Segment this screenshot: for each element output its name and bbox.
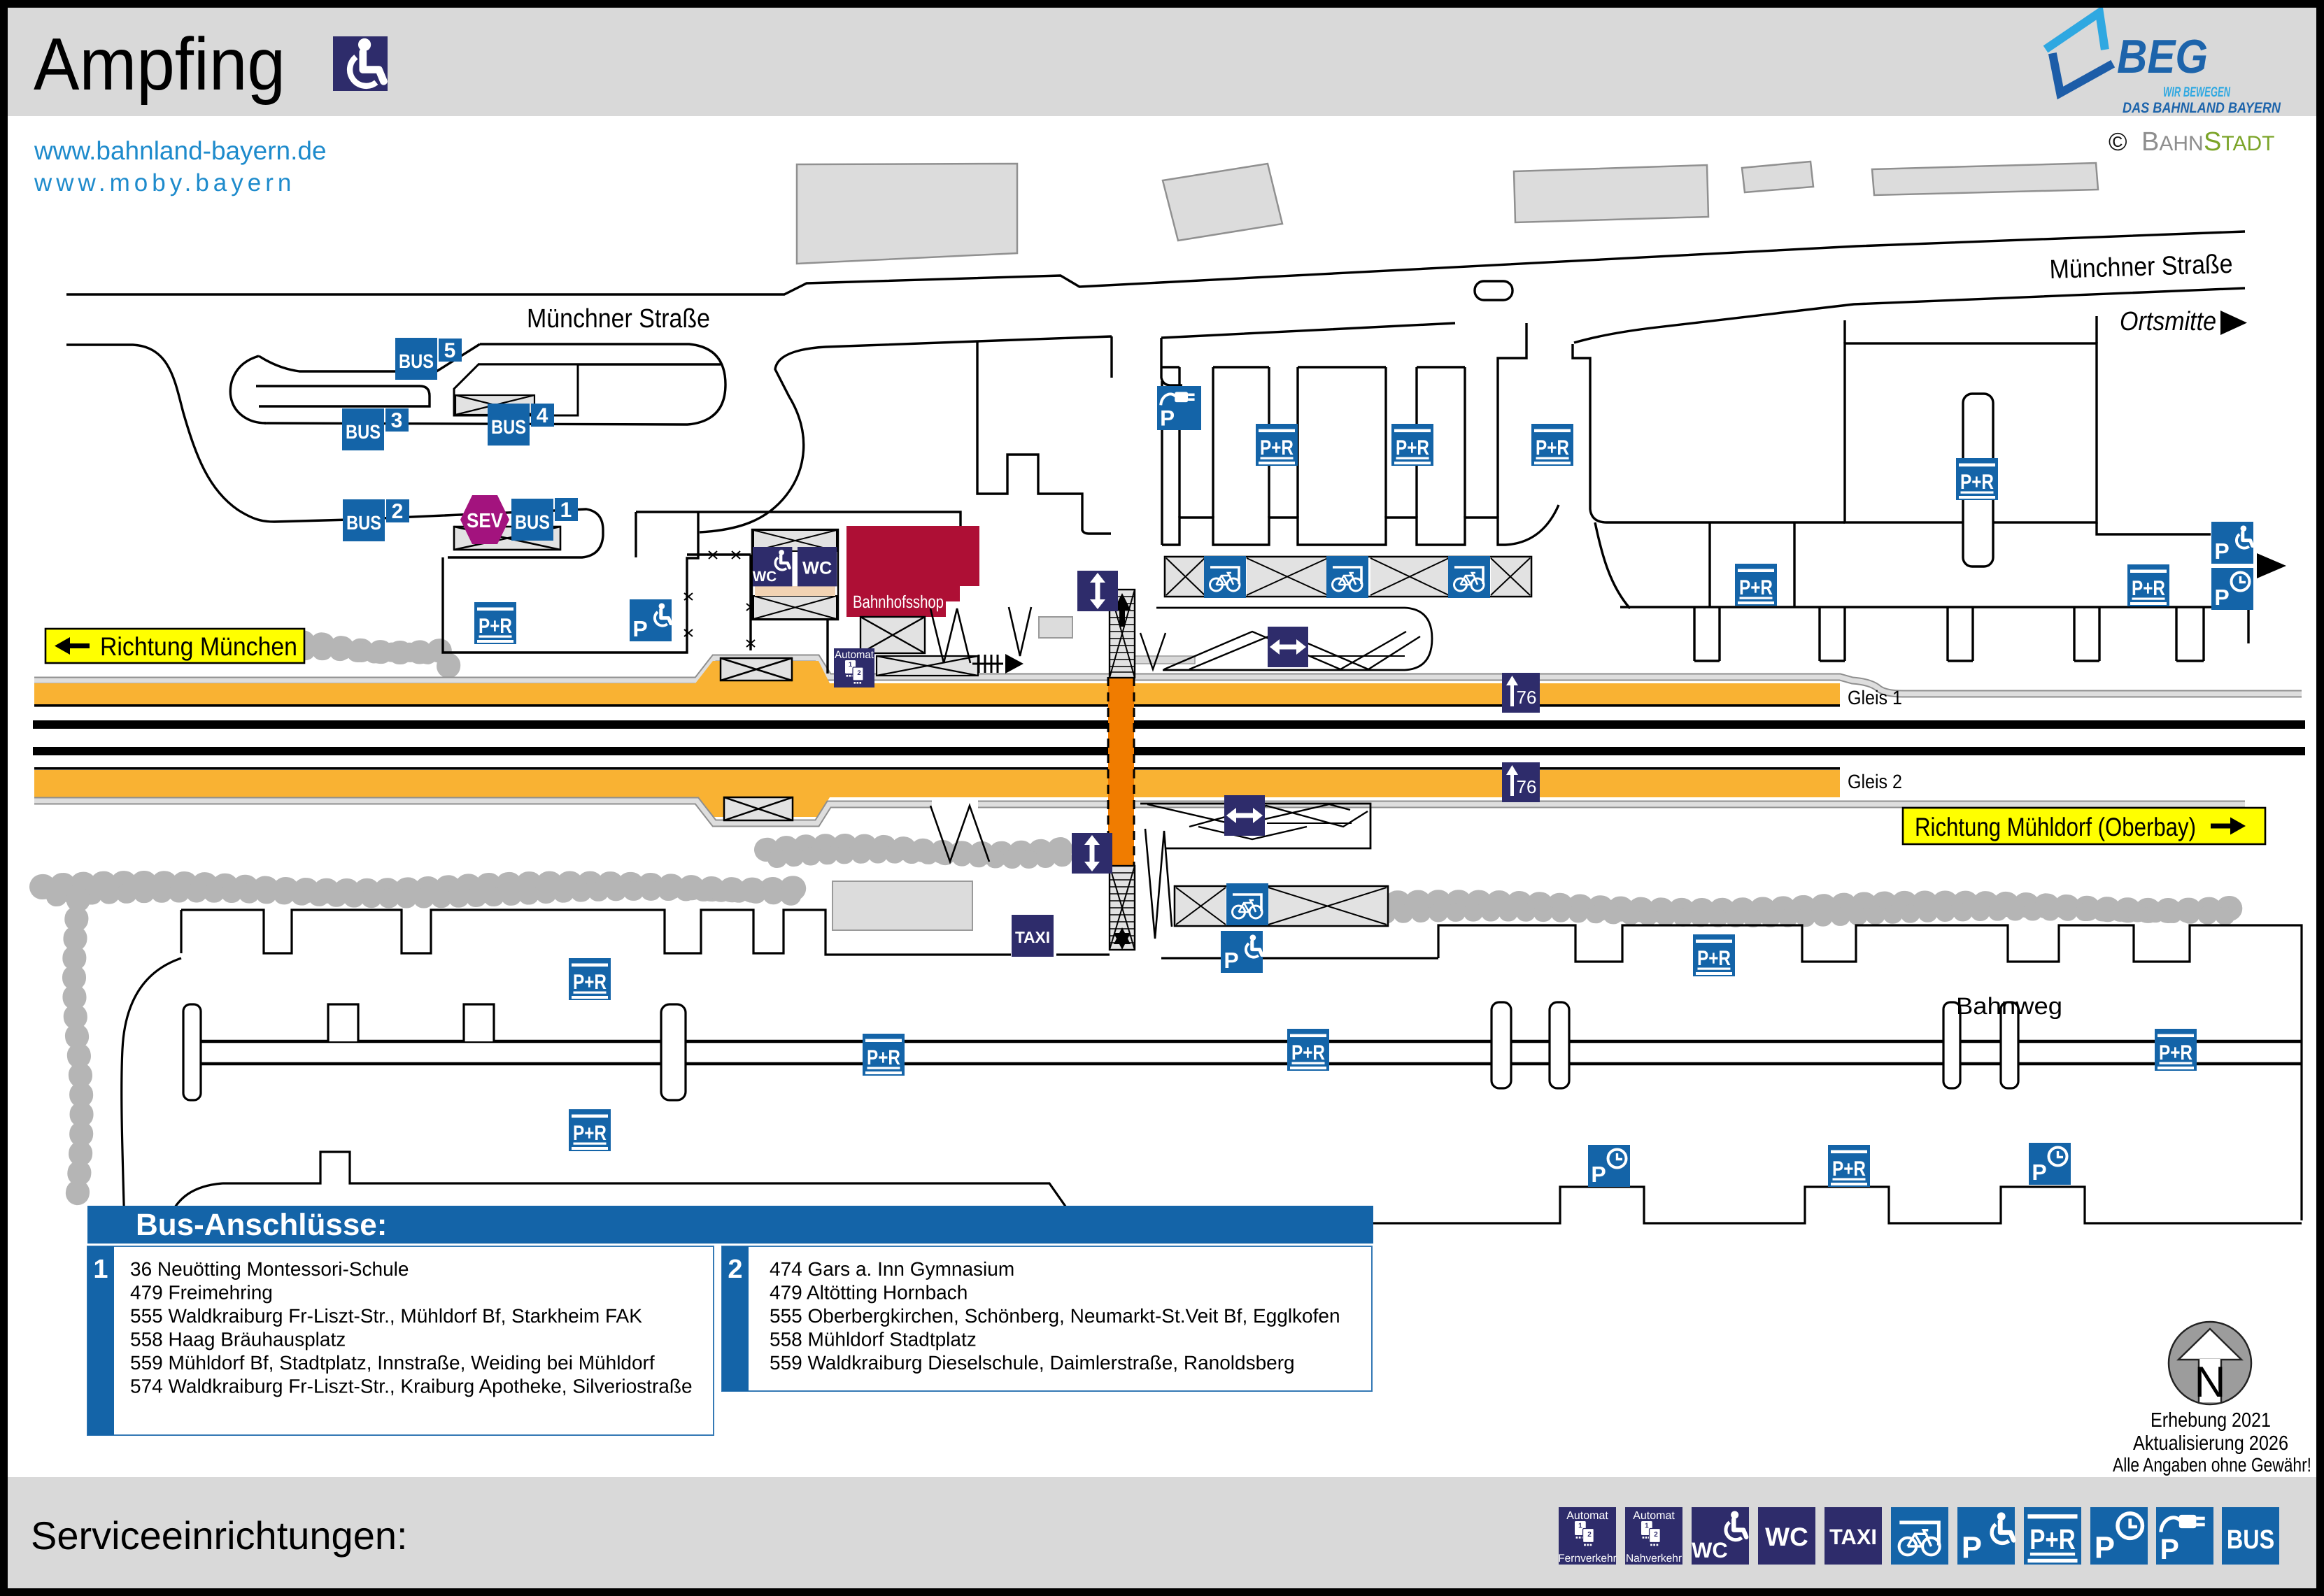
svg-text:5: 5 bbox=[444, 339, 456, 362]
svg-text:Richtung München: Richtung München bbox=[100, 632, 297, 661]
svg-text:Bahnweg: Bahnweg bbox=[1956, 993, 2062, 1020]
svg-text:555 Waldkraiburg Fr-Liszt-Str.: 555 Waldkraiburg Fr-Liszt-Str., Mühldorf… bbox=[130, 1305, 642, 1327]
svg-text:WC: WC bbox=[1692, 1538, 1728, 1562]
svg-text:1: 1 bbox=[560, 499, 572, 522]
svg-text:3: 3 bbox=[391, 409, 403, 432]
svg-text:4: 4 bbox=[537, 404, 548, 427]
svg-text:Fernverkehr: Fernverkehr bbox=[1558, 1553, 1617, 1565]
svg-text:Münchner Straße: Münchner Straße bbox=[527, 304, 710, 334]
svg-text:DAS BAHNLAND BAYERN: DAS BAHNLAND BAYERN bbox=[2123, 100, 2281, 116]
svg-text:479 Freimehring: 479 Freimehring bbox=[130, 1282, 273, 1304]
svg-text:1: 1 bbox=[93, 1255, 108, 1284]
svg-text:BEG: BEG bbox=[2117, 30, 2208, 83]
svg-text:559 Mühldorf Bf, Stadtplatz, I: 559 Mühldorf Bf, Stadtplatz, Innstraße, … bbox=[130, 1352, 655, 1374]
svg-text:TAXI: TAXI bbox=[1829, 1525, 1877, 1549]
svg-text:Gleis 2: Gleis 2 bbox=[1848, 771, 1902, 792]
svg-text:Serviceeinrichtungen:: Serviceeinrichtungen: bbox=[31, 1513, 408, 1558]
svg-text:WIR BEWEGEN: WIR BEWEGEN bbox=[2163, 85, 2230, 100]
svg-text:www.moby.bayern: www.moby.bayern bbox=[34, 169, 295, 197]
svg-text:Bus-Anschlüsse:: Bus-Anschlüsse: bbox=[136, 1208, 387, 1242]
svg-text:Ampfing: Ampfing bbox=[34, 23, 285, 106]
svg-text:SEV: SEV bbox=[467, 510, 504, 532]
svg-text:Aktualisierung 2026: Aktualisierung 2026 bbox=[2133, 1432, 2288, 1455]
svg-text:Automat: Automat bbox=[1566, 1510, 1608, 1522]
svg-text:N: N bbox=[2195, 1358, 2226, 1406]
svg-text:Nahverkehr: Nahverkehr bbox=[1626, 1553, 1682, 1565]
svg-text:STADT: STADT bbox=[2204, 127, 2274, 157]
svg-text:BAHN: BAHN bbox=[2141, 127, 2204, 157]
svg-text:479 Altötting Hornbach: 479 Altötting Hornbach bbox=[770, 1282, 968, 1304]
svg-text:Ortsmitte: Ortsmitte bbox=[2120, 307, 2216, 336]
svg-text:555 Oberbergkirchen, Schönberg: 555 Oberbergkirchen, Schönberg, Neumarkt… bbox=[770, 1305, 1340, 1327]
svg-text:Richtung Mühldorf (Oberbay): Richtung Mühldorf (Oberbay) bbox=[1915, 813, 2196, 841]
svg-text:574 Waldkraiburg Fr-Liszt-Str.: 574 Waldkraiburg Fr-Liszt-Str., Kraiburg… bbox=[130, 1376, 693, 1397]
svg-text:WC: WC bbox=[1765, 1523, 1808, 1551]
svg-text:www.bahnland-bayern.de: www.bahnland-bayern.de bbox=[34, 136, 327, 165]
svg-text:558 Mühldorf Stadtplatz: 558 Mühldorf Stadtplatz bbox=[770, 1329, 977, 1351]
svg-text:474 Gars a. Inn Gymnasium: 474 Gars a. Inn Gymnasium bbox=[770, 1258, 1014, 1280]
svg-text:Gleis 1: Gleis 1 bbox=[1848, 687, 1902, 708]
svg-text:Automat: Automat bbox=[1633, 1510, 1675, 1522]
svg-text:2: 2 bbox=[392, 500, 404, 523]
svg-text:Alle Angaben ohne Gewähr!: Alle Angaben ohne Gewähr! bbox=[2113, 1454, 2311, 1476]
svg-text:Erhebung 2021: Erhebung 2021 bbox=[2151, 1409, 2271, 1432]
svg-text:2: 2 bbox=[728, 1255, 742, 1284]
svg-text:©: © bbox=[2109, 127, 2127, 156]
svg-text:558 Haag Bräuhausplatz: 558 Haag Bräuhausplatz bbox=[130, 1329, 346, 1351]
svg-text:36 Neuötting Montessori-Schule: 36 Neuötting Montessori-Schule bbox=[130, 1258, 409, 1280]
svg-text:Münchner Straße: Münchner Straße bbox=[2049, 250, 2233, 285]
svg-text:559 Waldkraiburg Dieselschule,: 559 Waldkraiburg Dieselschule, Daimlerst… bbox=[770, 1352, 1295, 1374]
